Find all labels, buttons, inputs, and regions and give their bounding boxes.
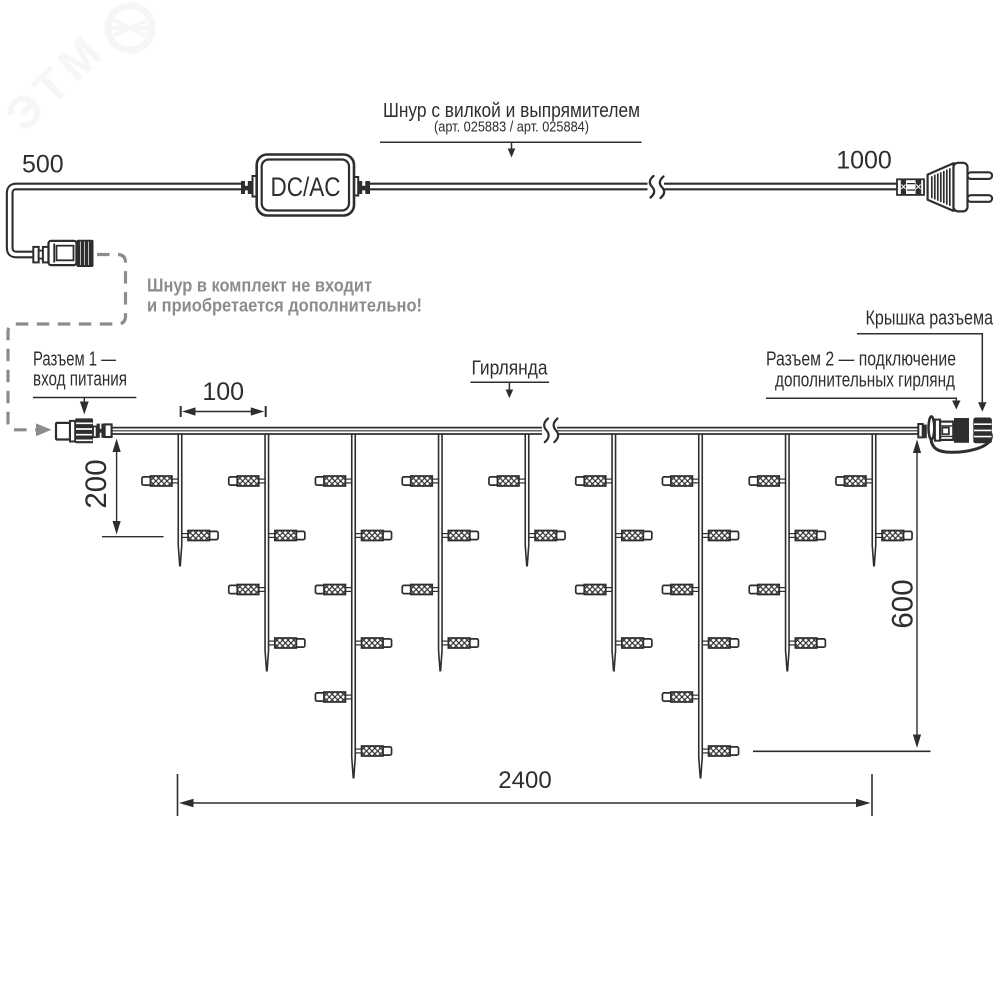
svg-text:и приобретается дополнительно!: и приобретается дополнительно! <box>147 295 422 316</box>
svg-text:(арт. 025883 / арт. 025884): (арт. 025883 / арт. 025884) <box>434 120 589 136</box>
svg-text:Гирлянда: Гирлянда <box>472 358 549 380</box>
svg-text:600: 600 <box>887 579 920 628</box>
svg-text:Шнур в комплект не входит: Шнур в комплект не входит <box>147 275 372 296</box>
svg-text:Разъем 2 — подключение: Разъем 2 — подключение <box>766 349 956 371</box>
svg-text:вход питания: вход питания <box>33 369 127 391</box>
svg-text:500: 500 <box>22 151 64 179</box>
svg-text:Разъем 1 —: Разъем 1 — <box>33 349 116 371</box>
svg-text:100: 100 <box>202 378 244 406</box>
svg-text:Крышка разъема: Крышка разъема <box>866 308 994 330</box>
svg-text:DC/AC: DC/AC <box>271 172 341 202</box>
svg-text:дополнительных гирлянд: дополнительных гирлянд <box>775 370 955 392</box>
svg-text:2400: 2400 <box>498 767 551 794</box>
svg-text:200: 200 <box>80 459 113 508</box>
svg-text:1000: 1000 <box>836 147 892 175</box>
